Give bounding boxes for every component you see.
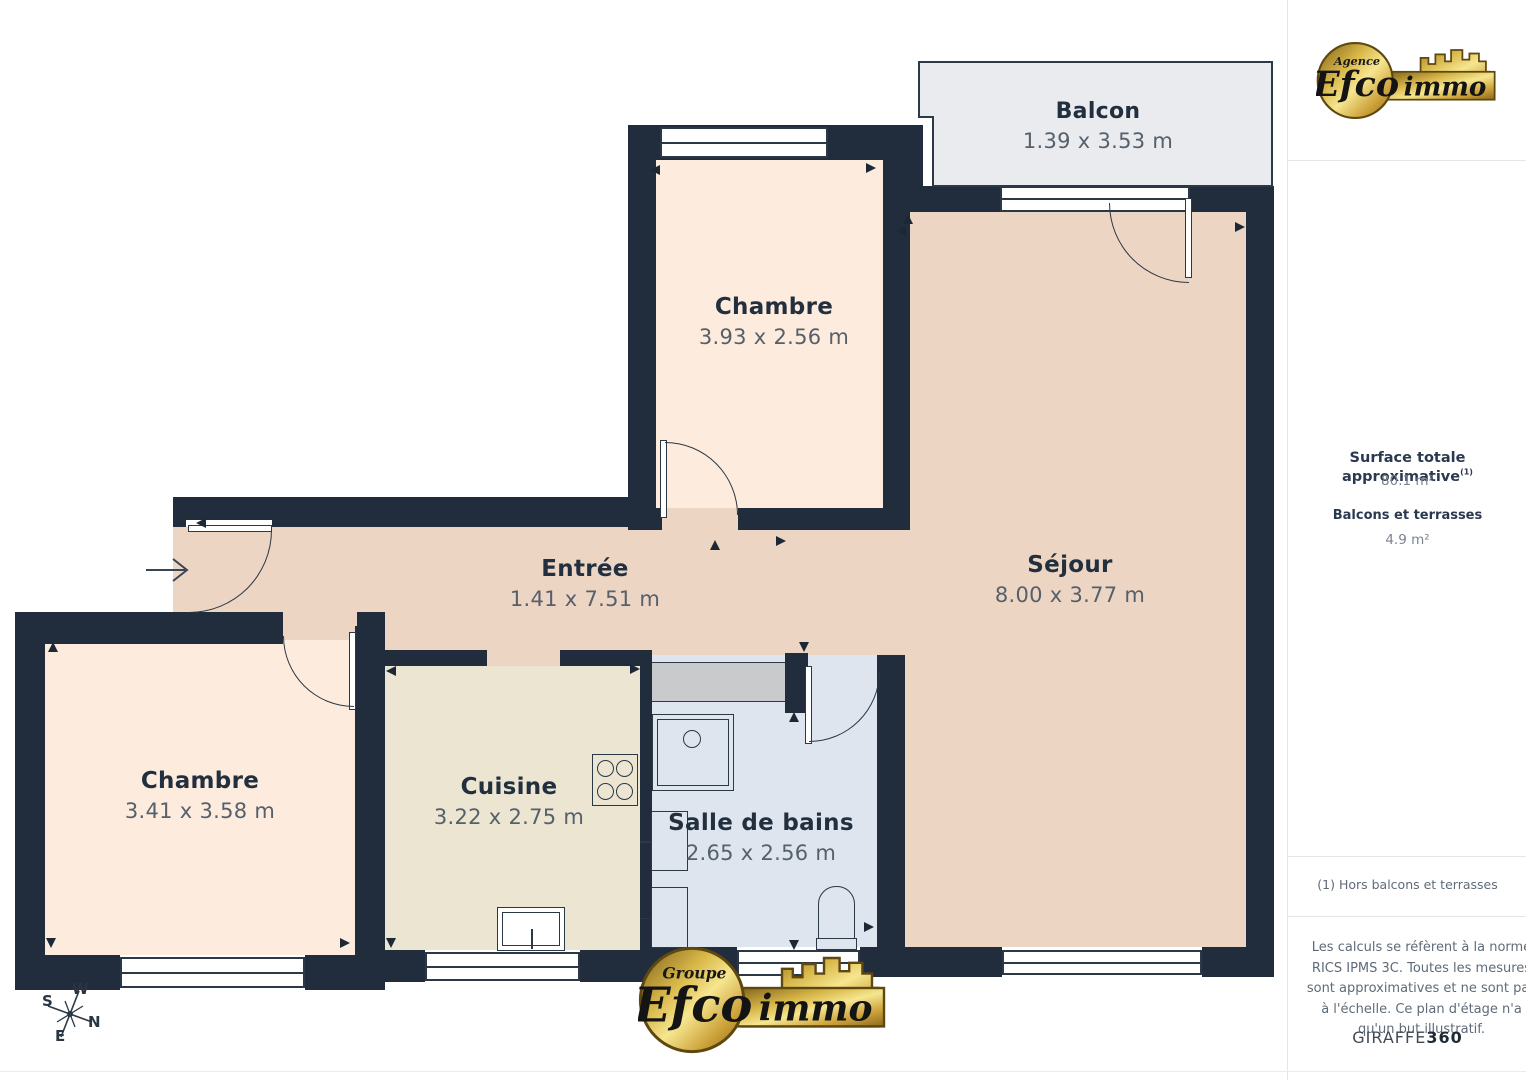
compass-rose [26,974,116,1054]
room-name: Chambre [699,294,849,320]
room-dims: 8.00 x 3.77 m [995,583,1145,607]
room-dims: 2.65 x 2.56 m [668,841,854,865]
balconies-value: 4.9 m² [1288,532,1526,548]
wall [1246,186,1274,977]
logo-suffix: immo [1404,71,1487,102]
wall [15,612,45,990]
room-dims: 1.41 x 7.51 m [510,587,660,611]
burner [597,783,614,800]
room-name: Salle de bains [668,810,854,836]
shower-drain [683,730,701,748]
wall [15,612,283,644]
footnote: (1) Hors balcons et terrasses [1288,877,1526,892]
room-dims: 3.41 x 3.58 m [125,799,275,823]
wall [560,650,650,666]
room-name: Séjour [995,552,1145,578]
shower-tray [657,719,729,786]
wall [370,650,487,666]
room-label-sejour: Séjour 8.00 x 3.77 m [995,552,1145,607]
wall [186,497,272,520]
room-name: Cuisine [434,774,584,800]
room-label-chambre-left: Chambre 3.41 x 3.58 m [125,768,275,823]
burner [597,760,614,777]
groupe-efco-immo-logo: Groupe Efco immo [638,928,890,1072]
compass-n: N [88,1013,101,1031]
room-label-salle-de-bains: Salle de bains 2.65 x 2.56 m [668,810,854,865]
room-name: Entrée [510,556,660,582]
logo-suffix: immo [759,987,873,1029]
burner [616,760,633,777]
wall [1202,947,1274,977]
wall [738,508,910,530]
stove [592,754,638,806]
room-dims: 3.22 x 2.75 m [434,805,584,829]
compass-e: E [55,1027,65,1045]
room-dims: 3.93 x 2.56 m [699,325,849,349]
wall [355,626,385,990]
compass-w: W [72,980,89,998]
logo-brand: Efco [638,978,752,1034]
door-leaf [1185,198,1192,278]
window [1002,950,1202,975]
surface-total-value: 80.1 m² [1288,473,1526,489]
cabinet-line [640,918,652,920]
cabinet-line [640,841,652,843]
window [660,127,828,158]
wall [895,186,1000,212]
logo-brand: Efco [1316,64,1399,105]
kitchen-sink [497,907,565,951]
compass-s: S [42,992,53,1010]
sidebar: Agence Efco immo Surface totale approxim… [1287,0,1526,1080]
room-dims: 1.39 x 3.53 m [1023,129,1173,153]
wall [877,655,905,950]
shower [652,714,734,791]
balconies-title: Balcons et terrasses [1288,508,1526,523]
floorplan-page: Balcon 1.39 x 3.53 m Chambre 3.93 x 2.56… [0,0,1526,1080]
wall [883,160,910,530]
room-name: Balcon [1023,99,1173,124]
agence-efco-immo-logo: Agence Efco immo [1316,28,1499,133]
room-label-entree: Entrée 1.41 x 7.51 m [510,556,660,611]
wall [370,950,425,982]
room-label-chambre-top: Chambre 3.93 x 2.56 m [699,294,849,349]
sink-tap [531,929,533,949]
entry-arrow [145,556,193,584]
giraffe360-brand: GIRAFFE360 [1288,1028,1526,1047]
window [120,957,305,988]
window [425,952,580,981]
room-label-balcon: Balcon 1.39 x 3.53 m [1023,99,1173,153]
room-name: Chambre [125,768,275,794]
wall [628,125,656,520]
disclaimer: Les calculs se réfèrent à la norme RICS … [1288,938,1526,1041]
wall [173,497,186,527]
room-label-cuisine: Cuisine 3.22 x 2.75 m [434,774,584,829]
bathroom-counter [650,662,795,702]
wall [272,497,656,527]
burner [616,783,633,800]
